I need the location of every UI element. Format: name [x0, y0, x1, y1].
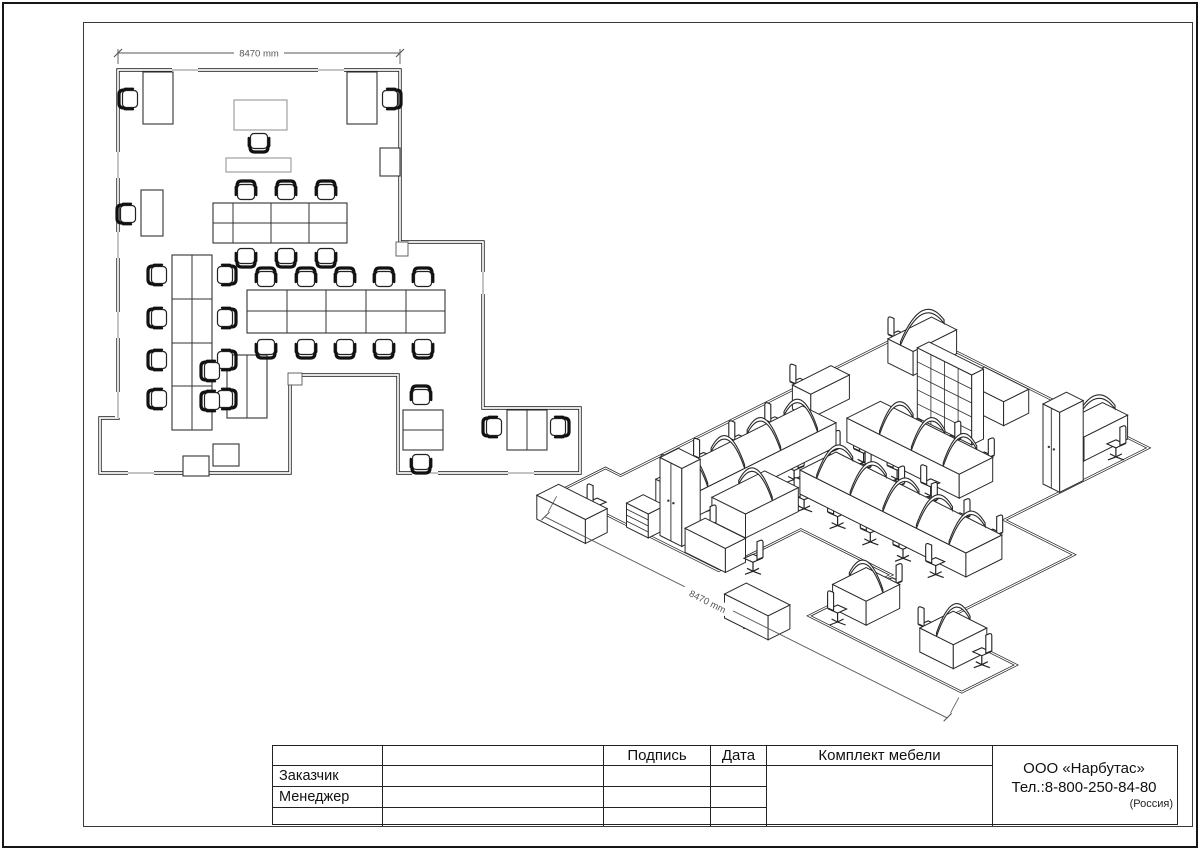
- title-cell-empty: [383, 808, 604, 826]
- furniture-set-cell: [767, 766, 993, 826]
- chair-seat: [205, 363, 220, 380]
- desk: [234, 100, 287, 130]
- title-cell-empty: [273, 808, 383, 826]
- chair-seat: [415, 272, 432, 287]
- chair-back: [918, 607, 924, 627]
- chair-seat: [152, 352, 167, 369]
- company-country: (Россия): [995, 798, 1173, 812]
- iso-side-face: [972, 369, 984, 445]
- chair-seat: [413, 390, 430, 405]
- date-header: Дата: [711, 746, 767, 766]
- chair-back: [1120, 426, 1126, 446]
- manager-date-cell[interactable]: [711, 787, 767, 808]
- title-cell-empty: [383, 746, 604, 766]
- dimension-ext: [950, 697, 958, 713]
- chair-back: [997, 515, 1003, 535]
- wardrobe-handle: [1053, 448, 1055, 450]
- dimension-label: 8470 mm: [239, 49, 279, 60]
- wardrobe-handle: [1048, 446, 1050, 448]
- chair-seat: [278, 249, 295, 264]
- chair-seat: [205, 393, 220, 410]
- chair-seat: [152, 391, 167, 408]
- customer-label: Заказчик: [273, 766, 383, 787]
- chair-seat: [298, 272, 315, 287]
- manager-value-cell[interactable]: [383, 787, 604, 808]
- chair-seat: [415, 340, 432, 355]
- chair-seat: [238, 249, 255, 264]
- chair-back: [986, 634, 992, 654]
- manager-signature-cell[interactable]: [604, 787, 711, 808]
- desk: [143, 72, 173, 124]
- chair-seat: [413, 455, 430, 470]
- desk: [380, 148, 400, 176]
- chair-seat: [258, 272, 275, 287]
- furniture-set-header: Комплект мебели: [767, 746, 993, 766]
- company-phone: Тел.:8-800-250-84-80: [995, 779, 1173, 798]
- wall-column: [396, 242, 408, 256]
- title-block: Подпись Дата Комплект мебели ООО «Нарбут…: [272, 745, 1178, 825]
- desk: [226, 158, 291, 172]
- chair-seat: [278, 185, 295, 200]
- wall-column: [288, 373, 302, 385]
- drawing-canvas: 8470 mm 8470 mm: [0, 0, 1200, 850]
- title-cell-empty: [604, 808, 711, 826]
- desk: [141, 190, 163, 236]
- title-cell-empty: [711, 808, 767, 826]
- chair-back: [790, 364, 796, 384]
- chair-seat: [251, 134, 268, 149]
- chair-seat: [218, 310, 233, 327]
- chair-seat: [551, 419, 566, 436]
- customer-signature-cell[interactable]: [604, 766, 711, 787]
- chair-seat: [318, 249, 335, 264]
- chair-seat: [298, 340, 315, 355]
- chair-seat: [152, 310, 167, 327]
- company-name: ООО «Нарбутас»: [995, 760, 1173, 779]
- dimension-label: 8470 mm: [687, 589, 727, 617]
- wardrobe-handle: [667, 499, 669, 501]
- chair-seat: [383, 91, 398, 108]
- chair-seat: [152, 267, 167, 284]
- signature-header: Подпись: [604, 746, 711, 766]
- customer-value-cell[interactable]: [383, 766, 604, 787]
- chair-back: [694, 438, 700, 458]
- chair-back: [921, 465, 927, 485]
- iso-side-face: [1060, 401, 1084, 493]
- chair-back: [888, 317, 894, 337]
- chair-seat: [123, 91, 138, 108]
- chair-back: [828, 591, 834, 611]
- wardrobe-handle: [672, 502, 674, 504]
- chair-back: [988, 438, 994, 458]
- isometric-view: 8470 mm: [537, 309, 1149, 721]
- chair-back: [926, 544, 932, 564]
- chair-seat: [318, 185, 335, 200]
- drawing-sheet: 8470 mm 8470 mm Подпись Дата Комплект ме…: [0, 0, 1200, 850]
- chair-seat: [121, 206, 136, 223]
- desk: [183, 456, 209, 476]
- chair-seat: [337, 340, 354, 355]
- title-cell-empty: [273, 746, 383, 766]
- iso-wardrobe: [1043, 392, 1083, 492]
- chair-seat: [376, 340, 393, 355]
- chair-seat: [337, 272, 354, 287]
- desk: [347, 72, 377, 124]
- chair-base: [745, 562, 761, 574]
- chair-seat: [238, 185, 255, 200]
- chair-back: [896, 564, 902, 584]
- chair-back: [757, 540, 763, 560]
- company-info: ООО «Нарбутас» Тел.:8-800-250-84-80 (Рос…: [993, 746, 1179, 826]
- manager-label: Менеджер: [273, 787, 383, 808]
- chair-seat: [376, 272, 393, 287]
- chair-seat: [218, 267, 233, 284]
- desk: [213, 444, 239, 466]
- chair-seat: [487, 419, 502, 436]
- customer-date-cell[interactable]: [711, 766, 767, 787]
- chair-seat: [258, 340, 275, 355]
- floor-plan-2d: 8470 mm: [100, 46, 580, 476]
